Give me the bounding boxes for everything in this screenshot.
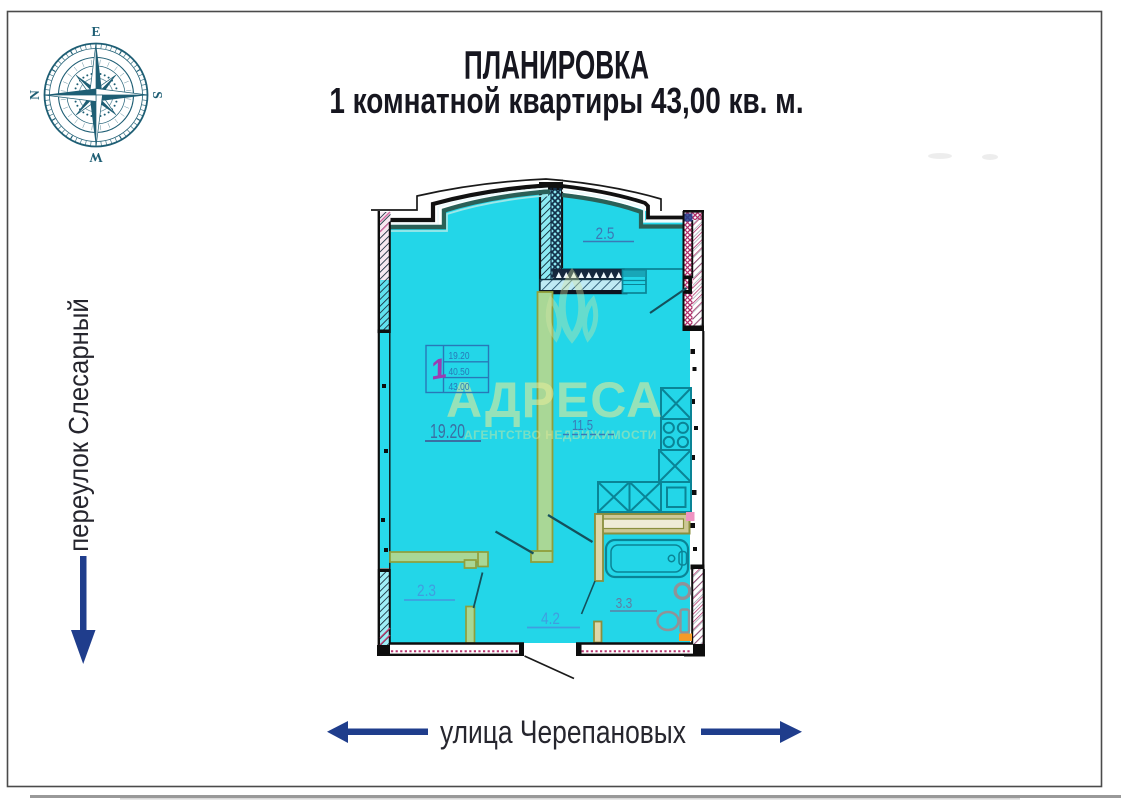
svg-text:3.3: 3.3: [616, 595, 633, 612]
svg-text:2.5: 2.5: [596, 225, 615, 244]
svg-text:E: E: [91, 24, 100, 39]
svg-text:19.20: 19.20: [430, 419, 465, 442]
svg-text:W: W: [89, 150, 103, 165]
svg-text:1 комнатной квартиры 43,00 кв.: 1 комнатной квартиры 43,00 кв. м.: [329, 80, 803, 120]
svg-text:АГЕНТСТВО НЕДВИЖИМОСТИ: АГЕНТСТВО НЕДВИЖИМОСТИ: [464, 428, 657, 442]
svg-text:S: S: [150, 91, 165, 99]
svg-text:переулок Слесарный: переулок Слесарный: [63, 298, 94, 552]
svg-text:АДРЕСА: АДРЕСА: [446, 372, 663, 428]
svg-text:11.5: 11.5: [572, 416, 593, 433]
svg-text:N: N: [27, 90, 42, 100]
svg-text:2.3: 2.3: [417, 582, 436, 601]
svg-text:40.50: 40.50: [448, 366, 469, 378]
svg-text:19.20: 19.20: [448, 350, 469, 362]
svg-text:4.2: 4.2: [541, 610, 560, 629]
svg-text:улица Черепановых: улица Черепановых: [440, 715, 686, 751]
svg-text:43.00: 43.00: [448, 381, 469, 393]
